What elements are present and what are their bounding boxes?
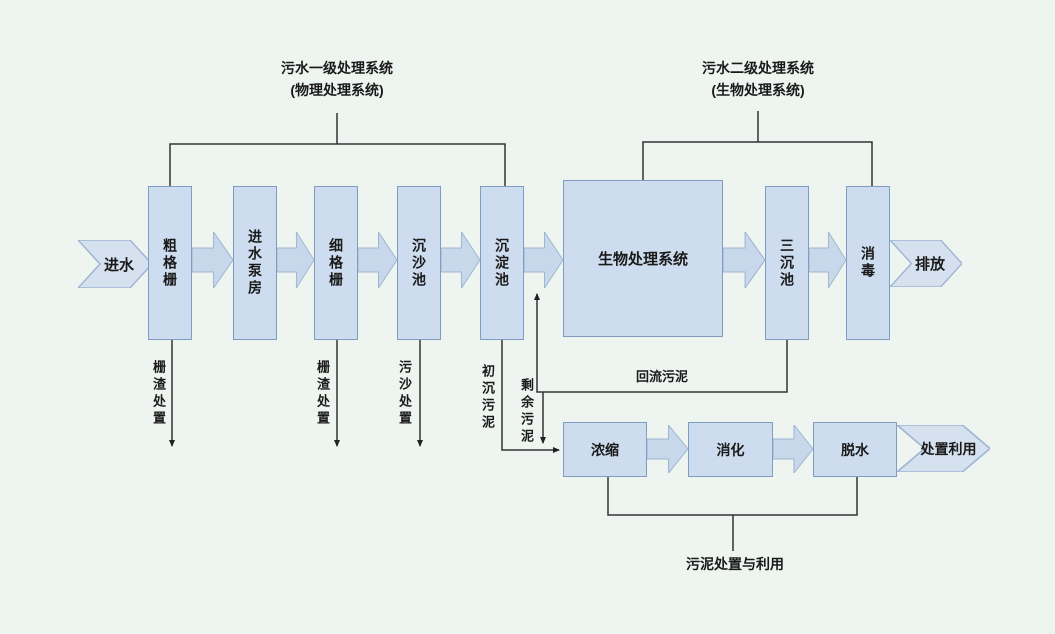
sludge-outlet-arrow-label: 处置利用 [897,425,990,472]
box-sedimentation-tank: 沉淀池 [480,186,524,340]
sludge-outlet-arrow: 处置利用 [897,425,990,472]
outlet-arrow: 排放 [890,240,962,287]
box-digestion-label: 消化 [717,440,745,460]
outlet-arrow-label: 排放 [890,240,962,287]
coarse-screen-waste-label: 栅渣处置 [149,360,168,428]
sludge-flow-arrow-2 [773,425,813,473]
box-grit-chamber-label: 沉沙池 [409,238,429,289]
box-biological-treatment-label: 生物处理系统 [598,248,688,269]
box-grit-chamber: 沉沙池 [397,186,441,340]
box-dewatering: 脱水 [813,422,897,477]
excess-sludge-label: 剩余污泥 [517,378,536,446]
secondary-system-title-line1: 污水二级处理系统 [658,58,858,80]
primary-system-title-line2: (物理处理系统) [237,80,437,102]
secondary-system-title-line2: (生物处理系统) [658,80,858,102]
inlet-arrow-label: 进水 [78,240,152,288]
primary-system-title: 污水一级处理系统 (物理处理系统) [237,58,437,101]
flow-arrow-6 [723,232,765,288]
grit-waste-label: 污沙处置 [395,360,414,428]
primary-system-title-line1: 污水一级处理系统 [237,58,437,80]
box-secondary-clarifier-label: 三沉池 [777,238,797,289]
wastewater-treatment-flowchart: 污水一级处理系统 (物理处理系统) 污水二级处理系统 (生物处理系统) 进水 粗… [0,0,1055,634]
box-disinfection: 消毒 [846,186,890,340]
box-coarse-screen-label: 粗格栅 [160,238,180,289]
primary-sludge-label: 初沉污泥 [478,364,497,432]
box-inlet-pump-house: 进水泵房 [233,186,277,340]
sludge-footer-label: 污泥处置与利用 [655,554,815,574]
box-sedimentation-tank-label: 沉淀池 [492,238,512,289]
fine-screen-waste-label: 栅渣处置 [313,360,332,428]
secondary-system-title: 污水二级处理系统 (生物处理系统) [658,58,858,101]
flow-arrow-3 [358,232,397,288]
sludge-footer-bracket [608,477,857,515]
sludge-flow-arrow-1 [647,425,688,473]
box-secondary-clarifier: 三沉池 [765,186,809,340]
box-thickening-label: 浓缩 [591,440,619,460]
box-thickening: 浓缩 [563,422,647,477]
box-digestion: 消化 [688,422,773,477]
box-biological-treatment: 生物处理系统 [563,180,723,337]
flow-arrow-4 [441,232,480,288]
flow-arrow-5 [524,232,563,288]
box-inlet-pump-house-label: 进水泵房 [245,229,265,297]
flow-arrow-2 [277,232,314,288]
box-dewatering-label: 脱水 [841,440,869,460]
inlet-arrow: 进水 [78,240,152,288]
flow-arrow-7 [809,232,846,288]
primary-system-bracket [170,144,505,186]
flow-arrow-1 [192,232,233,288]
box-fine-screen: 细格栅 [314,186,358,340]
box-fine-screen-label: 细格栅 [326,238,346,289]
box-coarse-screen: 粗格栅 [148,186,192,340]
return-sludge-label: 回流污泥 [612,366,712,385]
box-disinfection-label: 消毒 [858,246,878,280]
